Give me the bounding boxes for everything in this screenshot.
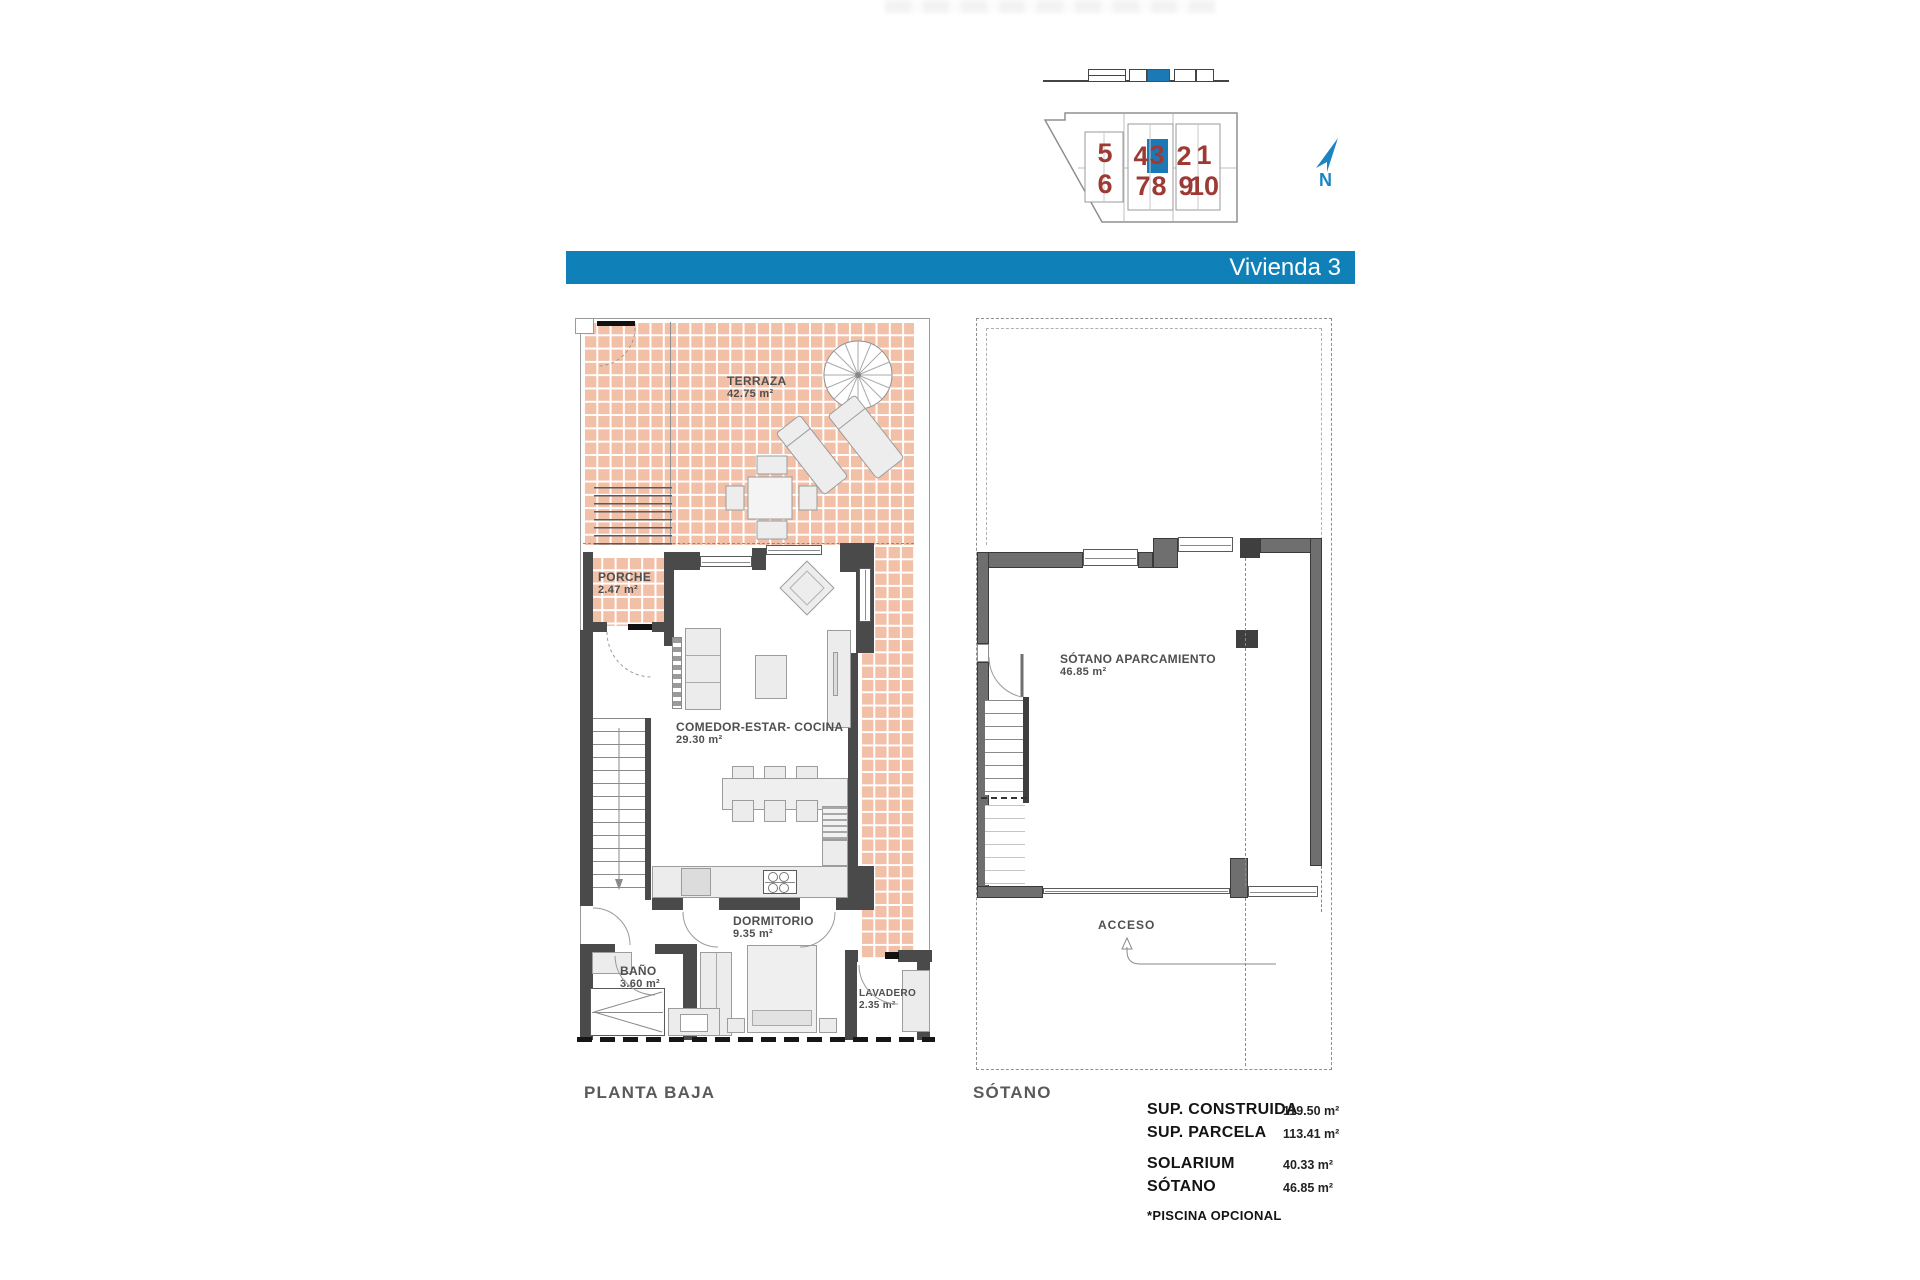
sotano-wall-bottom-thin — [1248, 886, 1318, 897]
lavadero-label-group: LAVADERO 2.35 m² — [859, 988, 916, 1012]
sotano-wall-top-2 — [1138, 552, 1153, 568]
floor-name-planta-baja: PLANTA BAJA — [584, 1083, 715, 1103]
radiator — [672, 637, 682, 709]
stair-side-wall — [645, 718, 651, 900]
sofa — [685, 628, 721, 710]
elevation-block-1 — [1088, 69, 1126, 82]
bed — [747, 945, 817, 1033]
wall-lavadero-top-2 — [898, 950, 932, 962]
coffee-table — [755, 655, 787, 699]
sotano-wall-top-jog — [1153, 538, 1178, 568]
sotano-stair-break-line — [981, 797, 1027, 799]
plan-sheet-page: 5 4 3 2 1 6 7 8 9 10 N Vivienda 3 — [0, 0, 1920, 1280]
lavadero-door-leaf — [885, 952, 899, 959]
tv-unit — [827, 630, 851, 728]
wall-dorm-top-1 — [652, 898, 683, 910]
wall-bath-top-2 — [655, 944, 685, 954]
window-salon-2 — [766, 545, 822, 555]
terraza-steps — [594, 487, 672, 545]
sotano-wall-left-1 — [977, 552, 989, 644]
sotano-inner-dashed-outline — [986, 328, 1322, 545]
elevation-block-3 — [1174, 69, 1196, 82]
summary-row-label: SÓTANO — [1147, 1178, 1216, 1196]
wall-top-2 — [752, 548, 766, 570]
room-label: SÓTANO APARCAMIENTO — [1060, 652, 1216, 666]
sotano-plan: SÓTANO APARCAMIENTO 46.85 m² ACCESO — [976, 318, 1332, 1070]
wall-porche-bottom-right — [652, 622, 674, 632]
title-banner: Vivienda 3 — [566, 251, 1355, 284]
interior-stair — [593, 718, 645, 900]
fridge — [681, 868, 711, 896]
sotano-wall-bottom-left — [977, 886, 1043, 898]
room-area: 2.35 m² — [859, 1000, 916, 1012]
unit-number-3: 3 — [1142, 142, 1172, 169]
wall-lavadero-left — [845, 962, 857, 1040]
entry-notch — [575, 318, 594, 334]
room-area: 9.35 m² — [733, 928, 814, 941]
sotano-stair-wall — [1023, 697, 1029, 803]
sotano-column-2 — [1236, 630, 1258, 648]
sotano-wall-top-1 — [978, 552, 1083, 568]
unit-number-8: 8 — [1144, 173, 1174, 200]
room-area: 42.75 m² — [727, 388, 786, 401]
dormitorio-label-group: DORMITORIO 9.35 m² — [733, 914, 814, 942]
elevation-block-divider — [1089, 75, 1125, 76]
entrance-door-leaf — [628, 624, 652, 630]
bath-sink-basin — [680, 1014, 708, 1032]
window-salon-right — [859, 568, 871, 622]
section-dashed-boundary — [577, 1037, 935, 1042]
sotano-window-1 — [1083, 549, 1138, 566]
drive-dashed-line-upper — [1245, 558, 1246, 886]
summary-row-label: SUP. PARCELA — [1147, 1124, 1266, 1142]
acceso-label-group: ACCESO — [1098, 918, 1155, 932]
north-arrow-icon: N — [1312, 136, 1348, 188]
room-area: 29.30 m² — [676, 734, 843, 747]
sotano-door-opening — [977, 644, 989, 662]
dining-chair — [796, 800, 818, 822]
summary-note: *PISCINA OPCIONAL — [1147, 1208, 1282, 1223]
sotano-stair-solid — [985, 700, 1023, 795]
room-area: 2.47 m² — [598, 584, 651, 597]
bano-label-group: BAÑO 3.60 m² — [620, 964, 660, 992]
dining-chair — [764, 800, 786, 822]
sotano-dashed-right-gap — [1321, 866, 1322, 912]
terraza-label-group: TERRAZA 42.75 m² — [727, 374, 786, 402]
unit-number-5: 5 — [1090, 140, 1120, 167]
sotano-column-1 — [1240, 538, 1260, 558]
terraza-gate-door — [597, 321, 635, 326]
stove — [763, 870, 797, 894]
planta-baja-plan: TERRAZA 42.75 m² PORCHE 2.47 m² COMEDOR-… — [578, 316, 934, 1050]
page-title: Vivienda 3 — [1229, 254, 1341, 282]
room-label: PORCHE — [598, 570, 651, 584]
dining-chair — [732, 800, 754, 822]
drive-dashed-line-lower — [1245, 898, 1246, 1066]
unit-number-1: 1 — [1189, 142, 1219, 169]
summary-row-label: SUP. CONSTRUIDA — [1147, 1101, 1298, 1119]
summary-row-label: SOLARIUM — [1147, 1155, 1235, 1173]
sotano-wall-right — [1310, 538, 1322, 866]
sotano-window-2 — [1178, 537, 1233, 552]
aparcamiento-label-group: SÓTANO APARCAMIENTO 46.85 m² — [1060, 652, 1216, 680]
unit-number-6: 6 — [1090, 171, 1120, 198]
nightstand — [727, 1018, 745, 1033]
wall-dorm-top-3 — [836, 898, 860, 910]
garage-door-line — [1043, 888, 1230, 894]
cropped-logo-watermark — [885, 0, 1215, 13]
tv-screen — [833, 652, 838, 696]
nightstand — [819, 1018, 837, 1033]
room-area: 3.60 m² — [620, 978, 660, 991]
kitchen-counter-side — [822, 840, 848, 866]
room-label: DORMITORIO — [733, 914, 814, 928]
elevation-highlight-unit — [1147, 69, 1170, 82]
unit-number-10: 10 — [1189, 173, 1219, 200]
north-arrow-shape — [1316, 138, 1338, 172]
wall-dorm-top-2 — [719, 898, 800, 910]
north-label: N — [1319, 170, 1332, 190]
wall-exterior-left-upper — [580, 630, 593, 906]
room-label: LAVADERO — [859, 988, 916, 1000]
wall-lavadero-top-1 — [845, 950, 858, 962]
window-salon-1 — [700, 556, 752, 567]
wall-porche-left — [583, 552, 593, 630]
room-label: COMEDOR-ESTAR- COCINA — [676, 720, 843, 734]
summary-row-value: 40.33 m² — [1283, 1158, 1333, 1172]
floor-name-sotano: SÓTANO — [973, 1083, 1052, 1103]
shower — [590, 988, 665, 1036]
elevation-block-2 — [1129, 69, 1147, 82]
room-label: TERRAZA — [727, 374, 786, 388]
summary-row-value: 46.85 m² — [1283, 1181, 1333, 1195]
room-area: 46.85 m² — [1060, 666, 1216, 679]
summary-row-value: 113.41 m² — [1283, 1127, 1339, 1141]
sotano-stair-dashed — [985, 805, 1025, 885]
room-label: BAÑO — [620, 964, 660, 978]
porche-label-group: PORCHE 2.47 m² — [598, 570, 651, 598]
salon-label-group: COMEDOR-ESTAR- COCINA 29.30 m² — [676, 720, 843, 748]
elevation-block-4 — [1196, 69, 1214, 82]
summary-row-value: 119.50 m² — [1283, 1104, 1339, 1118]
acceso-label: ACCESO — [1098, 918, 1155, 932]
dishwasher — [822, 806, 848, 840]
